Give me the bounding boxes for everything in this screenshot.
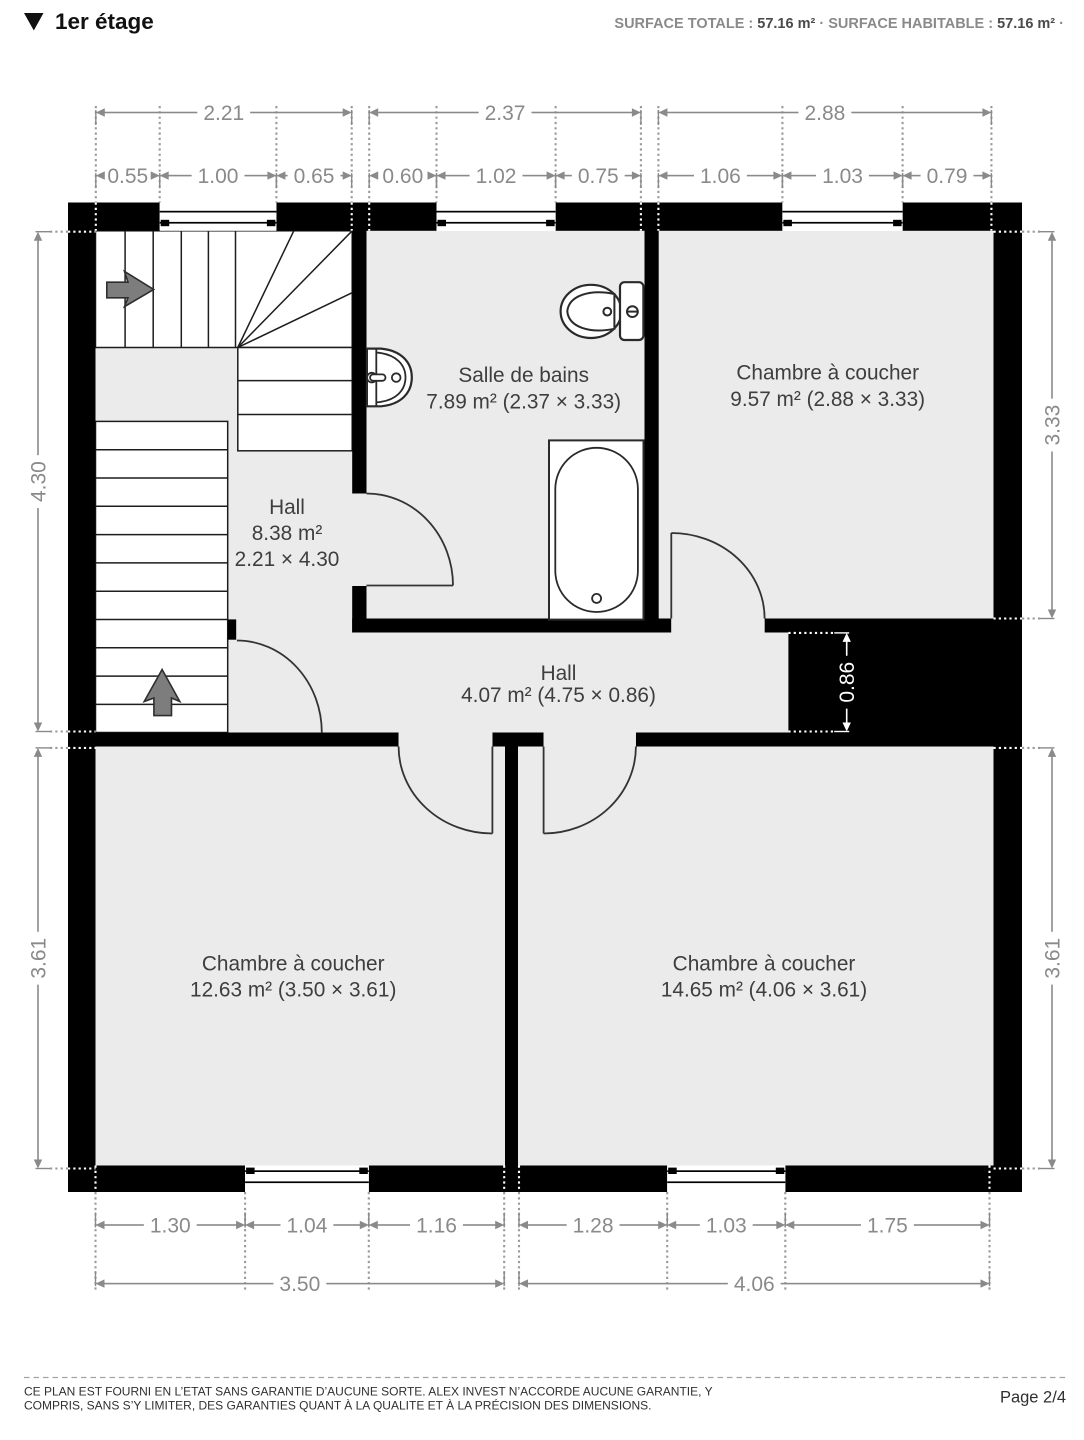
svg-text:1.00: 1.00 — [198, 165, 239, 188]
svg-text:0.60: 0.60 — [382, 165, 423, 188]
svg-text:2.37: 2.37 — [485, 102, 526, 125]
svg-text:0.79: 0.79 — [927, 165, 968, 188]
svg-text:0.86: 0.86 — [836, 662, 859, 703]
svg-text:1.75: 1.75 — [867, 1215, 908, 1238]
svg-text:Chambre à coucher: Chambre à coucher — [673, 953, 856, 976]
svg-text:4.06: 4.06 — [734, 1273, 775, 1296]
svg-text:Chambre à coucher: Chambre à coucher — [202, 953, 385, 976]
svg-text:2.88: 2.88 — [804, 102, 845, 125]
svg-text:1.03: 1.03 — [706, 1215, 747, 1238]
svg-text:3.50: 3.50 — [279, 1273, 320, 1296]
svg-text:3.33: 3.33 — [1042, 405, 1065, 446]
svg-text:4.30: 4.30 — [28, 461, 51, 502]
svg-text:12.63 m² (3.50 × 3.61): 12.63 m² (3.50 × 3.61) — [190, 978, 396, 1001]
svg-text:1er étage: 1er étage — [55, 9, 154, 34]
svg-text:8.38 m²: 8.38 m² — [252, 522, 323, 545]
svg-text:1.30: 1.30 — [150, 1215, 191, 1238]
svg-text:Hall: Hall — [541, 662, 577, 685]
svg-text:1.16: 1.16 — [416, 1215, 457, 1238]
svg-text:1.03: 1.03 — [822, 165, 863, 188]
svg-text:1.04: 1.04 — [287, 1215, 328, 1238]
svg-text:9.57 m² (2.88 × 3.33): 9.57 m² (2.88 × 3.33) — [730, 388, 925, 411]
svg-text:Chambre à coucher: Chambre à coucher — [736, 362, 919, 385]
svg-text:1.28: 1.28 — [573, 1215, 614, 1238]
svg-text:0.65: 0.65 — [294, 165, 335, 188]
svg-text:2.21 × 4.30: 2.21 × 4.30 — [235, 548, 340, 571]
svg-text:0.55: 0.55 — [107, 165, 148, 188]
svg-text:CE PLAN EST FOURNI EN L’ETAT S: CE PLAN EST FOURNI EN L’ETAT SANS GARANT… — [24, 1385, 713, 1399]
svg-text:Hall: Hall — [269, 496, 305, 519]
svg-text:COMPRIS, SANS S’Y LIMITER, DES: COMPRIS, SANS S’Y LIMITER, DES GARANTIES… — [24, 1398, 652, 1413]
svg-text:3.61: 3.61 — [28, 938, 51, 979]
svg-text:Salle de bains: Salle de bains — [458, 364, 589, 387]
svg-text:1.06: 1.06 — [700, 165, 741, 188]
svg-text:1.02: 1.02 — [476, 165, 517, 188]
svg-text:2.21: 2.21 — [203, 102, 244, 125]
svg-text:3.61: 3.61 — [1042, 938, 1065, 979]
svg-text:0.75: 0.75 — [578, 165, 619, 188]
svg-text:SURFACE TOTALE : 57.16 m² · SU: SURFACE TOTALE : 57.16 m² · SURFACE HABI… — [614, 16, 1064, 32]
svg-text:4.07 m² (4.75 × 0.86): 4.07 m² (4.75 × 0.86) — [461, 684, 656, 707]
svg-text:Page 2/4: Page 2/4 — [1000, 1389, 1066, 1407]
svg-text:7.89 m² (2.37 × 3.33): 7.89 m² (2.37 × 3.33) — [426, 391, 621, 414]
svg-text:14.65 m² (4.06 × 3.61): 14.65 m² (4.06 × 3.61) — [661, 978, 867, 1001]
